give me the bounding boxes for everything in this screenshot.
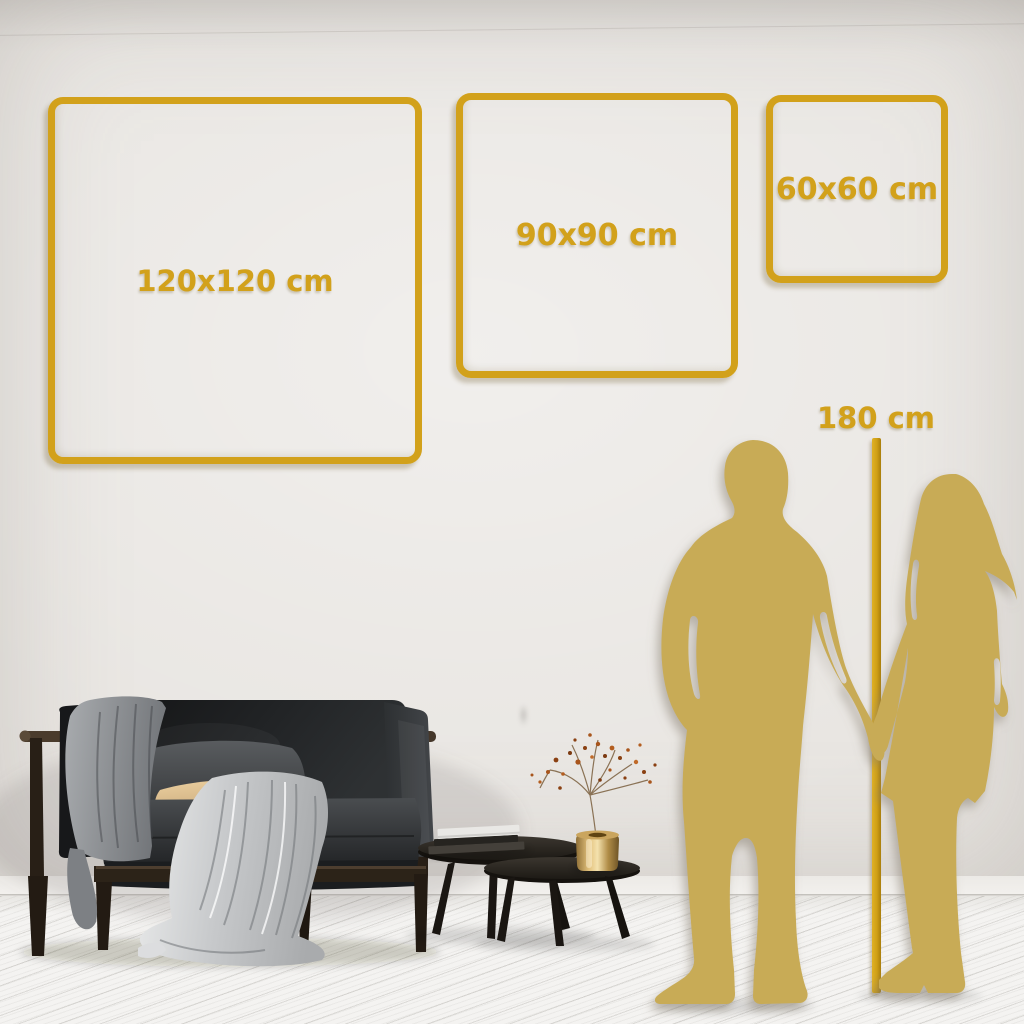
size-frame-90x90: 90x90 cm (456, 93, 738, 378)
wall-smudge (519, 704, 528, 726)
wall-art-size-guide-scene: 120x120 cm 90x90 cm 60x60 cm 180 cm (0, 0, 1024, 1024)
size-label-120x120: 120x120 cm (136, 264, 333, 298)
height-reference-label: 180 cm (796, 401, 956, 435)
height-reference-line (872, 438, 881, 993)
size-label-60x60: 60x60 cm (776, 172, 938, 207)
size-frame-60x60: 60x60 cm (766, 95, 948, 283)
floor (0, 896, 1024, 1024)
size-frame-120x120: 120x120 cm (48, 97, 422, 464)
baseboard (0, 876, 1024, 895)
size-label-90x90: 90x90 cm (516, 218, 678, 253)
